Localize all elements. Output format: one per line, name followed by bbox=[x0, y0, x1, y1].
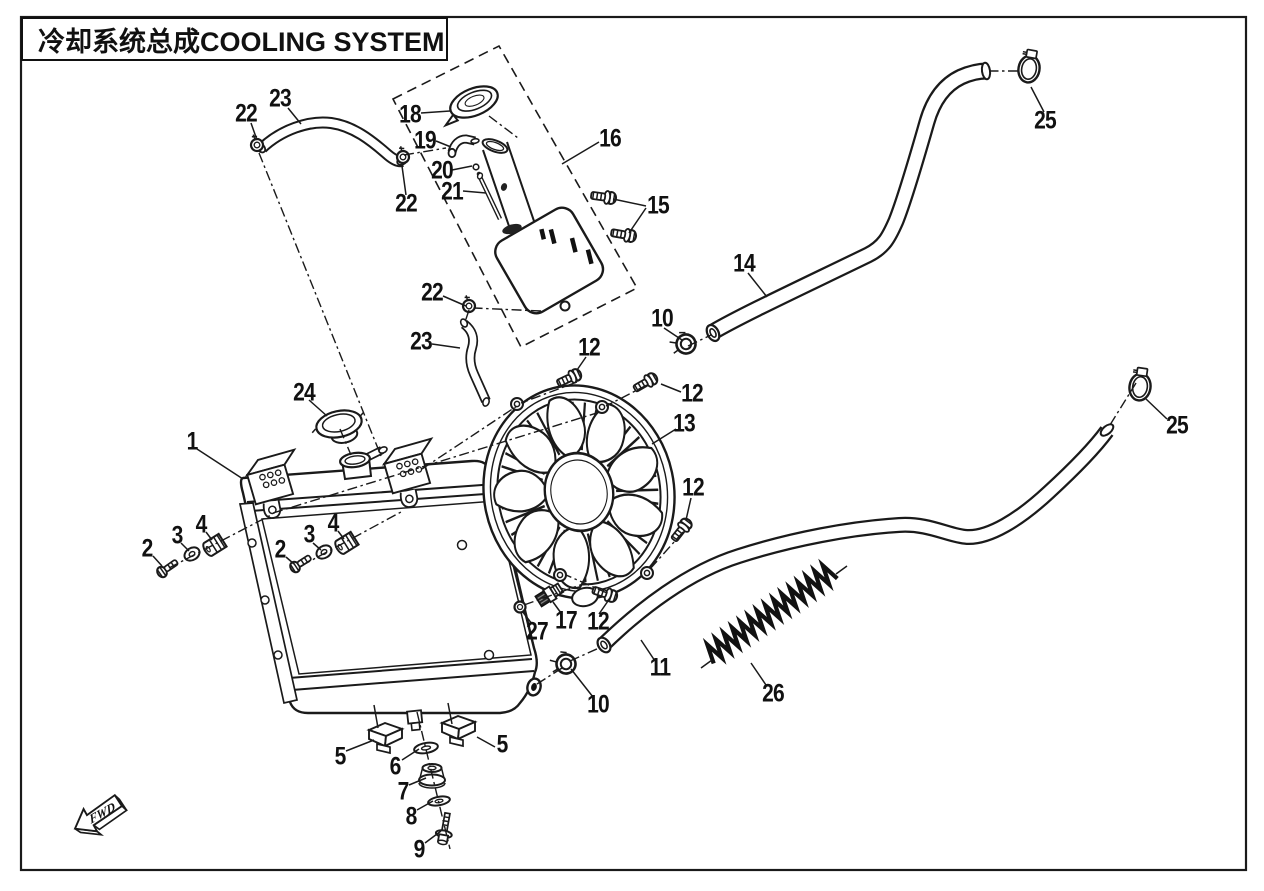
callout-5-7: 5 bbox=[335, 745, 346, 770]
callout-8-11: 8 bbox=[406, 805, 417, 830]
radiator-cap bbox=[309, 406, 369, 449]
hose-clamp-worm bbox=[1016, 48, 1042, 84]
callout-17-24: 17 bbox=[555, 609, 577, 634]
callout-22-31: 22 bbox=[421, 281, 443, 306]
callout-22-30: 22 bbox=[395, 192, 417, 217]
callout-15-22: 15 bbox=[647, 194, 669, 219]
mount-bolt bbox=[155, 557, 180, 579]
o-ring bbox=[515, 602, 526, 613]
callout-9-12: 9 bbox=[414, 838, 425, 863]
diagram-page: FWD 冷却系统总成COOLING SYSTEM 123423455678910… bbox=[0, 0, 1264, 891]
callout-13-20: 13 bbox=[673, 412, 695, 437]
callout-24-34: 24 bbox=[293, 381, 315, 406]
callout-23-32: 23 bbox=[269, 87, 291, 112]
callout-2-4: 2 bbox=[275, 538, 286, 563]
callout-12-17: 12 bbox=[681, 382, 703, 407]
callout-3-2: 3 bbox=[172, 524, 183, 549]
reservoir-hose-upper bbox=[255, 122, 408, 166]
callout-21-28: 21 bbox=[441, 180, 463, 205]
callout-25-35: 25 bbox=[1034, 109, 1056, 134]
callout-10-13: 10 bbox=[651, 307, 673, 332]
callout-3-5: 3 bbox=[304, 523, 315, 548]
reservoir-cap bbox=[436, 80, 502, 128]
reservoir-bolt bbox=[610, 226, 637, 243]
callout-7-10: 7 bbox=[398, 780, 409, 805]
callout-18-25: 18 bbox=[399, 103, 421, 128]
fwd-arrow: FWD bbox=[69, 791, 131, 844]
callout-27-38: 27 bbox=[526, 620, 548, 645]
callout-4-3: 4 bbox=[196, 513, 207, 538]
callout-12-18: 12 bbox=[682, 476, 704, 501]
radiator-hose-upper bbox=[704, 62, 991, 343]
callout-6-9: 6 bbox=[390, 755, 401, 780]
washer-upper bbox=[413, 741, 438, 755]
page-title: 冷却系统总成COOLING SYSTEM bbox=[38, 20, 445, 59]
callout-4-6: 4 bbox=[328, 512, 339, 537]
reservoir-bolt bbox=[590, 189, 617, 205]
spring bbox=[703, 563, 837, 664]
reservoir-elbow-fitting bbox=[449, 138, 480, 157]
rubber-mount bbox=[442, 716, 475, 746]
callout-12-19: 12 bbox=[587, 610, 609, 635]
callout-5-8: 5 bbox=[497, 733, 508, 758]
callout-11-15: 11 bbox=[650, 656, 671, 681]
callout-25-36: 25 bbox=[1166, 414, 1188, 439]
hose-clamp-worm bbox=[1128, 367, 1153, 402]
callout-22-29: 22 bbox=[235, 102, 257, 127]
callout-19-26: 19 bbox=[414, 129, 436, 154]
callout-12-16: 12 bbox=[578, 336, 600, 361]
callout-26-37: 26 bbox=[762, 682, 784, 707]
callout-16-23: 16 bbox=[599, 127, 621, 152]
callout-2-1: 2 bbox=[142, 537, 153, 562]
fan-screw bbox=[631, 371, 659, 395]
title-block: 冷却系统总成COOLING SYSTEM bbox=[21, 17, 448, 61]
callout-23-33: 23 bbox=[410, 330, 432, 355]
overflow-hose bbox=[459, 318, 490, 407]
rubber-mount bbox=[369, 723, 402, 753]
callout-1-0: 1 bbox=[187, 430, 198, 455]
callout-14-21: 14 bbox=[733, 252, 755, 277]
callout-10-14: 10 bbox=[587, 693, 609, 718]
reservoir-tank bbox=[481, 136, 608, 318]
